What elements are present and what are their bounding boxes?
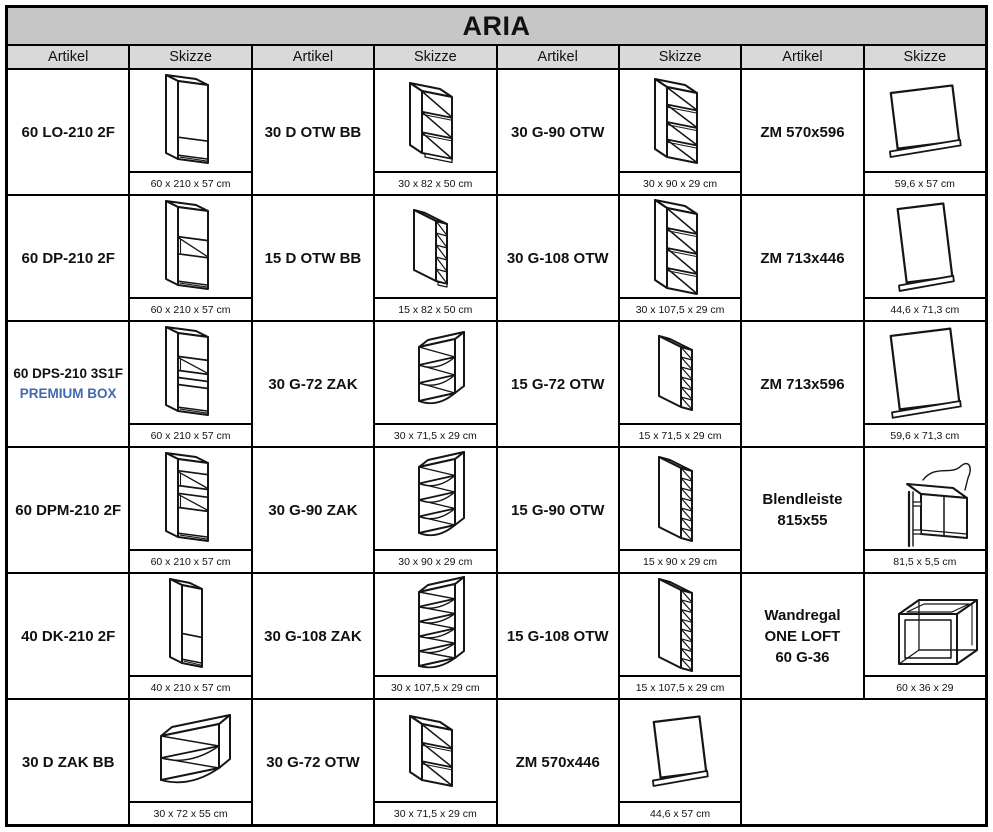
dimensions-label: 60 x 210 x 57 cm [130, 297, 250, 320]
artikel-cell: 30 D ZAK BB [8, 700, 128, 824]
article-code: 40 DK-210 2F [21, 626, 115, 647]
artikel-cell: 30 G-90 OTW [498, 70, 618, 194]
skizze-cell: 30 x 71,5 x 29 cm [375, 322, 495, 446]
skizze-cell: 60 x 210 x 57 cm [130, 448, 250, 572]
dimensions-label: 60 x 210 x 57 cm [130, 171, 250, 194]
skizze-cell: 59,6 x 71,3 cm [865, 322, 985, 446]
artikel-cell: 60 DP-210 2F [8, 196, 128, 320]
wall-shelf-sketch [620, 574, 740, 675]
skizze-cell: 60 x 210 x 57 cm [130, 322, 250, 446]
dimensions-label: 59,6 x 57 cm [865, 171, 985, 194]
dimensions-label: 44,6 x 57 cm [620, 801, 740, 824]
skizze-cell: 30 x 107,5 x 29 cm [620, 196, 740, 320]
tall-cabinet-sketch [130, 196, 250, 297]
corner-shelf-sketch [130, 700, 250, 801]
dimensions-label: 30 x 107,5 x 29 cm [620, 297, 740, 320]
article-code: Blendleiste 815x55 [762, 489, 842, 531]
tall-cabinet-sketch [130, 574, 250, 675]
skizze-cell: 59,6 x 57 cm [865, 70, 985, 194]
artikel-cell: 30 G-72 ZAK [253, 322, 373, 446]
catalog-table: ARIA Artikel Skizze Artikel Skizze Artik… [5, 5, 988, 827]
artikel-cell: 60 DPS-210 3S1FPREMIUM BOX [8, 322, 128, 446]
artikel-cell: 30 G-108 ZAK [253, 574, 373, 698]
artikel-cell: ZM 713x446 [742, 196, 862, 320]
artikel-cell: 30 G-108 OTW [498, 196, 618, 320]
artikel-cell: 30 G-90 ZAK [253, 448, 373, 572]
skizze-cell: 30 x 90 x 29 cm [620, 70, 740, 194]
dimensions-label: 15 x 71,5 x 29 cm [620, 423, 740, 446]
artikel-cell: ZM 570x596 [742, 70, 862, 194]
column-header-artikel: Artikel [253, 46, 373, 68]
column-header-skizze: Skizze [865, 46, 985, 68]
skizze-cell: 44,6 x 71,3 cm [865, 196, 985, 320]
skizze-cell: 15 x 90 x 29 cm [620, 448, 740, 572]
skizze-cell: 81,5 x 5,5 cm [865, 448, 985, 572]
article-code: 60 DPS-210 3S1F [13, 365, 123, 384]
article-code: 30 G-72 ZAK [268, 374, 357, 395]
skizze-cell: 44,6 x 57 cm [620, 700, 740, 824]
dimensions-label: 60 x 36 x 29 [865, 675, 985, 698]
article-code: 30 D OTW BB [265, 122, 362, 143]
artikel-cell: 15 G-90 OTW [498, 448, 618, 572]
artikel-cell: 15 G-72 OTW [498, 322, 618, 446]
dimensions-label: 60 x 210 x 57 cm [130, 549, 250, 572]
dimensions-label: 30 x 82 x 50 cm [375, 171, 495, 194]
dimensions-label: 40 x 210 x 57 cm [130, 675, 250, 698]
corner-shelf-sketch [375, 574, 495, 675]
article-code: 15 G-90 OTW [511, 500, 604, 521]
column-header-artikel: Artikel [742, 46, 862, 68]
blendleiste-sketch [865, 448, 985, 549]
dimensions-label: 30 x 71,5 x 29 cm [375, 801, 495, 824]
dimensions-label: 15 x 107,5 x 29 cm [620, 675, 740, 698]
artikel-cell: 15 D OTW BB [253, 196, 373, 320]
skizze-cell: 60 x 210 x 57 cm [130, 196, 250, 320]
artikel-cell: 30 D OTW BB [253, 70, 373, 194]
dimensions-label: 15 x 90 x 29 cm [620, 549, 740, 572]
column-header-skizze: Skizze [130, 46, 250, 68]
column-header-skizze: Skizze [375, 46, 495, 68]
article-code: 30 D ZAK BB [22, 752, 115, 773]
dimensions-label: 60 x 210 x 57 cm [130, 423, 250, 446]
article-code: 30 G-90 OTW [511, 122, 604, 143]
artikel-cell: ZM 713x596 [742, 322, 862, 446]
skizze-cell: 30 x 82 x 50 cm [375, 70, 495, 194]
skizze-cell: 30 x 90 x 29 cm [375, 448, 495, 572]
article-code: 30 G-108 ZAK [264, 626, 362, 647]
article-code: ZM 713x596 [760, 374, 844, 395]
artikel-cell: 40 DK-210 2F [8, 574, 128, 698]
wall-shelf-sketch [620, 322, 740, 423]
skizze-cell: 40 x 210 x 57 cm [130, 574, 250, 698]
open-shelf-sketch [375, 70, 495, 171]
article-code: 15 D OTW BB [265, 248, 362, 269]
wall-shelf-sketch [620, 448, 740, 549]
article-code: ZM 570x446 [516, 752, 600, 773]
article-code: 30 G-72 OTW [266, 752, 359, 773]
article-code: 15 G-72 OTW [511, 374, 604, 395]
artikel-cell: 60 DPM-210 2F [8, 448, 128, 572]
panel-sketch [620, 700, 740, 801]
article-code: Wandregal ONE LOFT 60 G-36 [764, 605, 840, 668]
article-code: 60 DPM-210 2F [15, 500, 121, 521]
wall-shelf-sketch [620, 70, 740, 171]
skizze-cell: 60 x 210 x 57 cm [130, 70, 250, 194]
empty-cell [742, 700, 985, 824]
artikel-cell: 60 LO-210 2F [8, 70, 128, 194]
article-code: ZM 713x446 [760, 248, 844, 269]
artikel-cell: Blendleiste 815x55 [742, 448, 862, 572]
open-shelf-sketch [375, 196, 495, 297]
article-code: 60 DP-210 2F [21, 248, 114, 269]
dimensions-label: 30 x 71,5 x 29 cm [375, 423, 495, 446]
dimensions-label: 30 x 90 x 29 cm [375, 549, 495, 572]
corner-shelf-sketch [375, 322, 495, 423]
article-code: 15 G-108 OTW [507, 626, 609, 647]
artikel-cell: Wandregal ONE LOFT 60 G-36 [742, 574, 862, 698]
skizze-cell: 15 x 82 x 50 cm [375, 196, 495, 320]
wall-frame-sketch [865, 574, 985, 675]
column-header-artikel: Artikel [498, 46, 618, 68]
dimensions-label: 59,6 x 71,3 cm [865, 423, 985, 446]
dimensions-label: 44,6 x 71,3 cm [865, 297, 985, 320]
skizze-cell: 30 x 72 x 55 cm [130, 700, 250, 824]
artikel-cell: ZM 570x446 [498, 700, 618, 824]
article-code: 30 G-108 OTW [507, 248, 609, 269]
panel-sketch [865, 322, 985, 423]
tall-cabinet-sketch [130, 70, 250, 171]
column-header-skizze: Skizze [620, 46, 740, 68]
artikel-cell: 15 G-108 OTW [498, 574, 618, 698]
wall-shelf-sketch [375, 700, 495, 801]
dimensions-label: 81,5 x 5,5 cm [865, 549, 985, 572]
catalog-page: ARIA Artikel Skizze Artikel Skizze Artik… [0, 0, 993, 832]
tall-cabinet-sketch [130, 322, 250, 423]
page-title: ARIA [8, 8, 985, 44]
article-code: ZM 570x596 [760, 122, 844, 143]
skizze-cell: 15 x 107,5 x 29 cm [620, 574, 740, 698]
panel-sketch [865, 196, 985, 297]
article-code: 60 LO-210 2F [21, 122, 114, 143]
article-code: 30 G-90 ZAK [268, 500, 357, 521]
dimensions-label: 30 x 72 x 55 cm [130, 801, 250, 824]
column-header-artikel: Artikel [8, 46, 128, 68]
premium-box-label: PREMIUM BOX [20, 385, 117, 404]
dimensions-label: 30 x 90 x 29 cm [620, 171, 740, 194]
skizze-cell: 30 x 107,5 x 29 cm [375, 574, 495, 698]
dimensions-label: 15 x 82 x 50 cm [375, 297, 495, 320]
skizze-cell: 30 x 71,5 x 29 cm [375, 700, 495, 824]
dimensions-label: 30 x 107,5 x 29 cm [375, 675, 495, 698]
corner-shelf-sketch [375, 448, 495, 549]
skizze-cell: 15 x 71,5 x 29 cm [620, 322, 740, 446]
tall-cabinet-sketch [130, 448, 250, 549]
wall-shelf-sketch [620, 196, 740, 297]
panel-sketch [865, 70, 985, 171]
skizze-cell: 60 x 36 x 29 [865, 574, 985, 698]
artikel-cell: 30 G-72 OTW [253, 700, 373, 824]
